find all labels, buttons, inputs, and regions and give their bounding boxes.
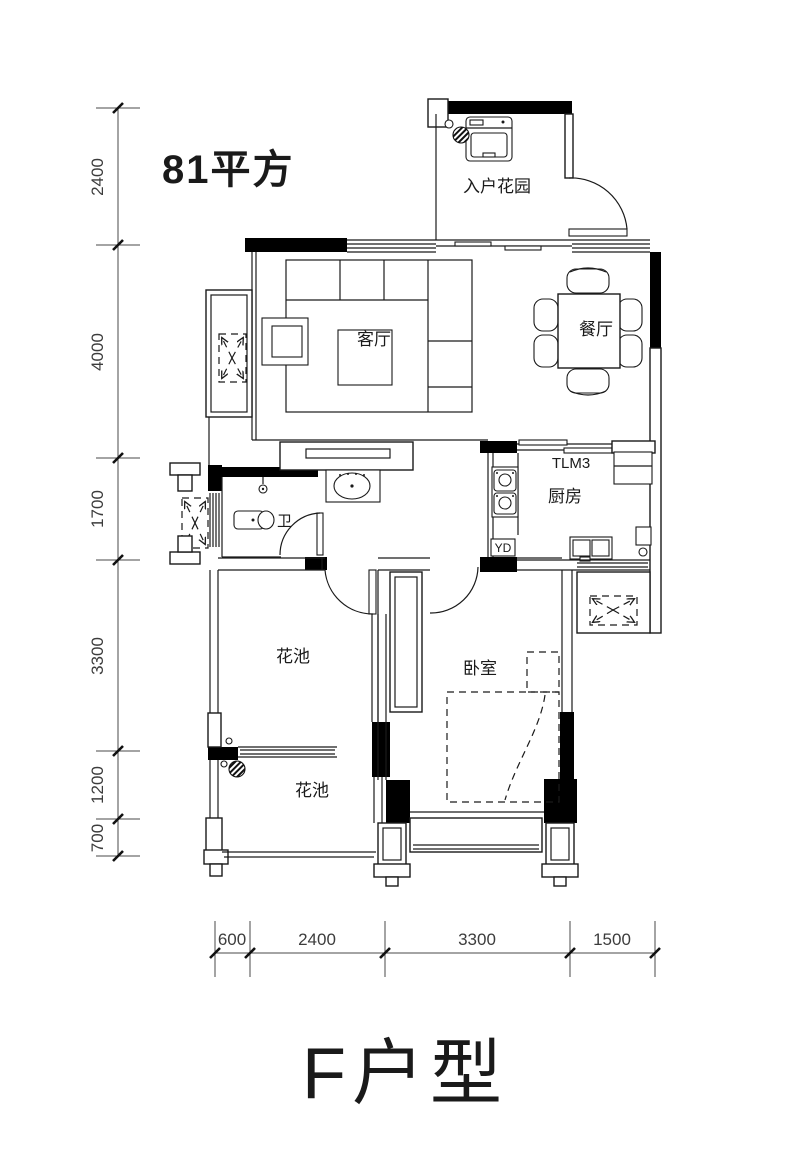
label-flower-bed-lower: 花池 bbox=[295, 781, 329, 800]
label-living-room: 客厅 bbox=[357, 330, 391, 349]
flower-bed-door-swing bbox=[325, 570, 373, 614]
ac-platform-right bbox=[577, 572, 650, 633]
dim-left-3300: 3300 bbox=[88, 637, 107, 675]
floor-plan-page: 2400 4000 1700 3300 1200 700 600 2400 33… bbox=[0, 0, 800, 1168]
floor-plan-drawing: 2400 4000 1700 3300 1200 700 600 2400 33… bbox=[0, 0, 800, 1168]
duct-icon bbox=[453, 127, 469, 143]
vanity-counter-icon bbox=[280, 442, 413, 470]
label-sliding-door: TLM3 bbox=[552, 455, 590, 472]
toilet-icon bbox=[234, 511, 274, 529]
wardrobe-icon bbox=[390, 572, 422, 712]
dim-left-2400: 2400 bbox=[88, 158, 107, 196]
label-flower-bed-upper: 花池 bbox=[276, 647, 310, 666]
shower-icon bbox=[259, 477, 267, 493]
dim-left-4000: 4000 bbox=[88, 333, 107, 371]
label-bathroom: 卫 bbox=[277, 513, 292, 530]
dim-left-1700: 1700 bbox=[88, 490, 107, 528]
dim-bottom-2400: 2400 bbox=[298, 930, 336, 949]
solid-walls bbox=[208, 101, 661, 823]
flower-bed-door-leaf bbox=[369, 570, 376, 614]
dim-bottom-1500: 1500 bbox=[593, 930, 631, 949]
kitchen-sink-icon bbox=[570, 537, 612, 561]
dim-bottom-3300: 3300 bbox=[458, 930, 496, 949]
label-kitchen: 厨房 bbox=[548, 487, 582, 506]
dim-left-700: 700 bbox=[88, 824, 107, 852]
drain-icon bbox=[445, 120, 453, 128]
label-dining-room: 餐厅 bbox=[579, 320, 613, 339]
dimension-bottom: 600 2400 3300 1500 bbox=[210, 921, 660, 977]
dim-left-1200: 1200 bbox=[88, 766, 107, 804]
label-entry-garden: 入户花园 bbox=[463, 177, 531, 196]
entry-door-swing bbox=[569, 178, 627, 229]
wash-basin-icon bbox=[326, 470, 380, 502]
bathroom-door-leaf bbox=[317, 513, 323, 555]
fridge-icon bbox=[614, 452, 652, 484]
entry-door-leaf bbox=[569, 229, 627, 236]
bedroom-door-swing bbox=[430, 567, 478, 613]
entry-garden bbox=[428, 99, 627, 250]
dimension-left: 2400 4000 1700 3300 1200 700 bbox=[88, 103, 140, 861]
sliding-door-icon bbox=[517, 440, 612, 453]
tv-cabinet-icon bbox=[262, 318, 308, 365]
drain-hatch-icon bbox=[229, 761, 245, 777]
washing-machine-icon bbox=[466, 117, 512, 161]
water-heater-icon bbox=[636, 527, 651, 556]
stove-icon bbox=[492, 467, 518, 517]
bathroom bbox=[170, 442, 413, 564]
label-bedroom: 卧室 bbox=[463, 659, 497, 678]
flower-bed-lower bbox=[204, 760, 382, 876]
living-room bbox=[206, 252, 488, 465]
bedroom bbox=[374, 570, 578, 886]
plan-title: F户型 bbox=[302, 1034, 508, 1114]
area-label: 81平方 bbox=[162, 148, 295, 192]
pillar-right bbox=[542, 823, 578, 886]
dim-bottom-600: 600 bbox=[218, 930, 246, 949]
label-floor-drain: YD bbox=[495, 541, 512, 555]
pillar-left bbox=[374, 823, 410, 886]
